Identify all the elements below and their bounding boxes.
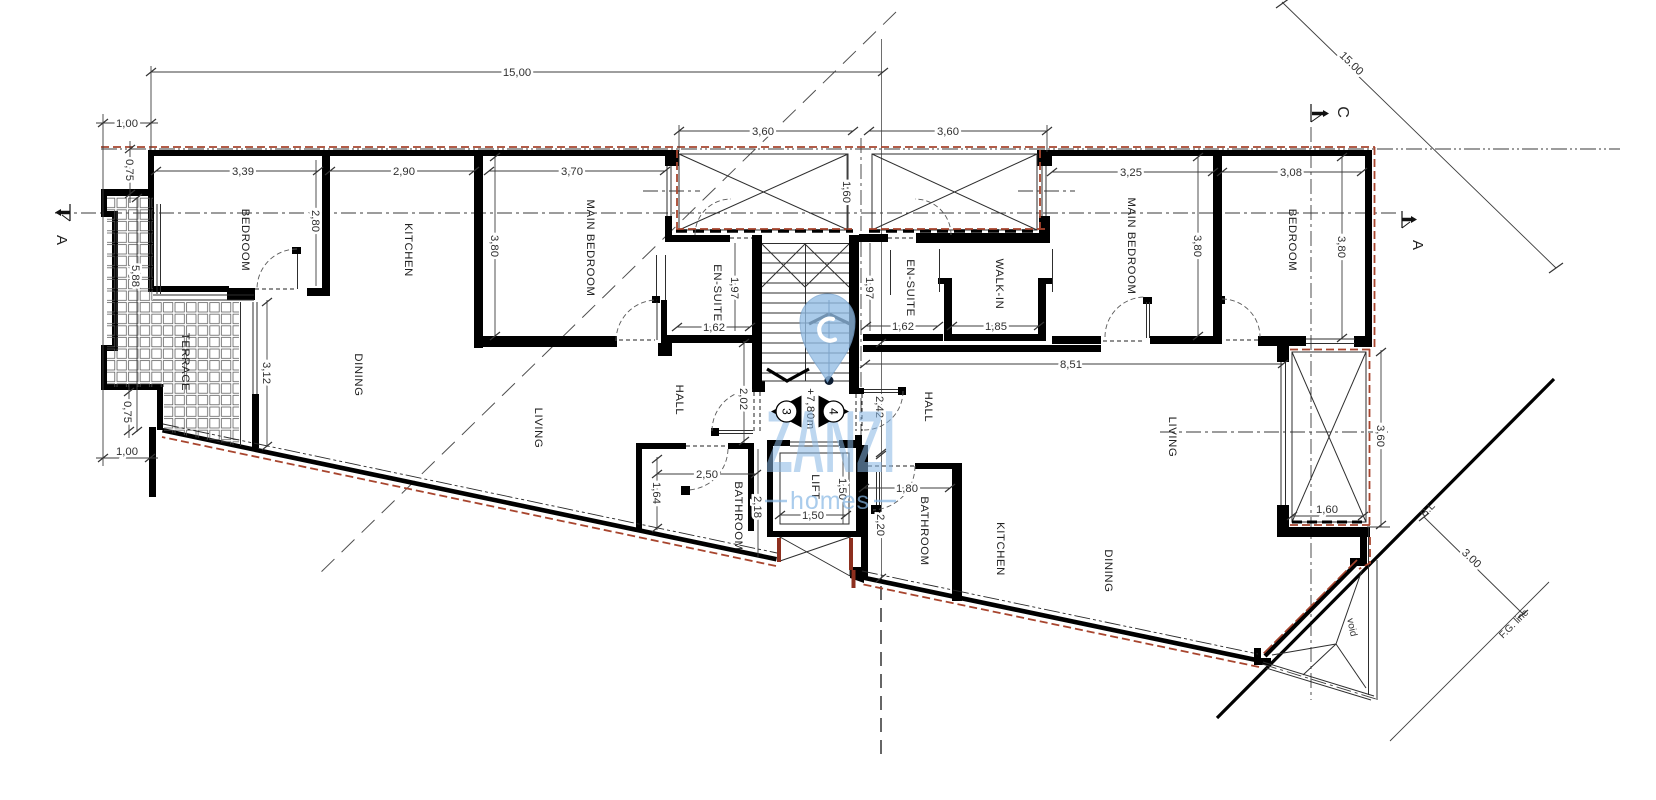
svg-text:3,60: 3,60 [752,126,774,138]
svg-text:2,02: 2,02 [737,388,749,410]
svg-text:3,08: 3,08 [1280,167,1302,179]
svg-text:TERRACE: TERRACE [179,333,191,391]
svg-text:2,80: 2,80 [309,210,321,232]
svg-text:BEDROOM: BEDROOM [1286,209,1298,272]
svg-text:3,80: 3,80 [1335,236,1347,258]
svg-text:HALL: HALL [673,385,685,416]
svg-text:1,60: 1,60 [1316,504,1338,516]
svg-text:1,80: 1,80 [896,483,918,495]
svg-text:2,90: 2,90 [393,166,415,178]
svg-text:C: C [1334,106,1351,118]
svg-text:1,64: 1,64 [650,482,662,504]
svg-text:3,80: 3,80 [488,235,500,257]
svg-text:DINING: DINING [1102,549,1114,592]
svg-text:15,00: 15,00 [503,67,531,79]
svg-text:BATHROOM: BATHROOM [732,481,744,550]
svg-text:3,60: 3,60 [937,126,959,138]
svg-text:1,97: 1,97 [728,277,740,299]
svg-text:0,75: 0,75 [121,401,133,423]
svg-text:1,62: 1,62 [703,322,725,334]
svg-text:homes: homes [790,487,870,515]
svg-text:1,62: 1,62 [892,321,914,333]
svg-text:A: A [1409,240,1426,250]
svg-text:BATHROOM: BATHROOM [918,496,930,565]
svg-text:MAIN BEDROOM: MAIN BEDROOM [584,200,596,297]
svg-text:WALK-IN: WALK-IN [993,259,1005,310]
svg-text:1,97: 1,97 [863,277,875,299]
svg-text:MAIN BEDROOM: MAIN BEDROOM [1125,198,1137,295]
svg-text:EN-SUITE: EN-SUITE [904,259,916,317]
svg-text:LIVING: LIVING [532,408,544,449]
svg-text:3,60: 3,60 [1374,425,1386,447]
svg-text:1,00: 1,00 [116,446,138,458]
svg-text:3,70: 3,70 [561,166,583,178]
svg-text:BEDROOM: BEDROOM [239,209,251,272]
svg-text:2,20: 2,20 [874,514,886,536]
svg-text:KITCHEN: KITCHEN [994,522,1006,576]
svg-text:HALL: HALL [922,392,934,423]
svg-text:3,80: 3,80 [1191,235,1203,257]
svg-text:5,88: 5,88 [129,265,141,287]
svg-text:2,18: 2,18 [751,496,763,518]
svg-text:LIVING: LIVING [1166,417,1178,458]
svg-text:2,50: 2,50 [696,469,718,481]
svg-text:KITCHEN: KITCHEN [402,223,414,277]
svg-text:3,12: 3,12 [260,362,272,384]
svg-text:1,00: 1,00 [116,118,138,130]
svg-text:8,51: 8,51 [1060,359,1082,371]
svg-text:3,39: 3,39 [232,166,254,178]
svg-text:4: 4 [827,408,841,415]
svg-text:1,85: 1,85 [985,321,1007,333]
svg-text:EN-SUITE: EN-SUITE [711,264,723,322]
svg-text:DINING: DINING [352,353,364,396]
svg-text:1,60: 1,60 [840,181,852,203]
svg-text:3: 3 [780,408,794,415]
svg-text:A: A [53,235,70,245]
svg-text:3,25: 3,25 [1120,167,1142,179]
svg-text:0,75: 0,75 [123,159,135,181]
